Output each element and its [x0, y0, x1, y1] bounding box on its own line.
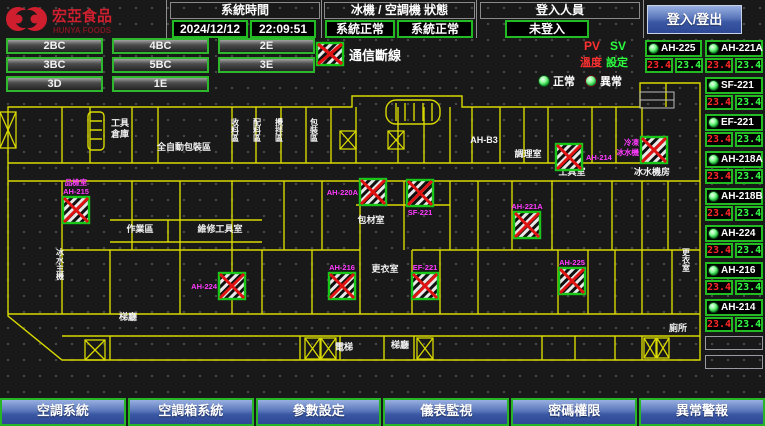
service-room-outline — [640, 92, 674, 108]
equipment-name: AH-224 — [721, 228, 755, 239]
brand-logo: 宏亞食品 HUNYA FOODS — [4, 2, 162, 41]
equipment-name: AH-216 — [721, 265, 755, 276]
equipment-values-ah-221a: 23.423.4 — [705, 58, 763, 73]
stair-x-icon — [85, 340, 105, 360]
equipment-name: EF-221 — [721, 117, 754, 128]
equipment-values-ef-221: 23.423.4 — [705, 132, 763, 147]
floor-button-3e[interactable]: 3E — [218, 57, 315, 73]
device-label: AH-221A — [511, 202, 543, 211]
device-label: AH-225 — [559, 258, 585, 267]
equipment-name: AH-218B — [721, 191, 763, 202]
room-label: 更衣室 — [681, 247, 691, 273]
room-label: 更衣室 — [371, 263, 398, 274]
status-lamp-icon — [708, 43, 719, 54]
sv-value: 23.4 — [735, 280, 763, 295]
equipment-empty-slot — [705, 336, 763, 350]
login-logout-button[interactable]: 登入/登出 — [647, 5, 742, 34]
brand-sub: HUNYA FOODS — [53, 26, 112, 35]
equipment-name: AH-218A — [721, 154, 763, 165]
device-ah-216[interactable]: AH-216 — [329, 263, 355, 299]
pv-value: 23.4 — [705, 95, 733, 110]
room-label: 配料區 — [253, 118, 262, 142]
device-label: AH-216 — [329, 263, 355, 272]
pv-value: 23.4 — [705, 317, 733, 332]
floor-button-3bc[interactable]: 3BC — [6, 57, 103, 73]
stair-x-icon — [321, 338, 336, 359]
equipment-ah-214[interactable]: AH-214 — [705, 299, 763, 316]
stair-x-icon — [417, 338, 433, 359]
device-ah-224[interactable]: AH-224 — [191, 273, 245, 299]
sv-header-label: SV — [610, 39, 626, 53]
device-ah-215[interactable]: 品檢室AH-215 — [63, 177, 89, 223]
menu-button-ahu-system[interactable]: 空調箱系統 — [128, 398, 254, 426]
chiller-status: 系統正常 — [325, 20, 395, 38]
device-label: AH-214 — [586, 153, 613, 162]
comm-offline-icon — [315, 41, 345, 67]
pv-value: 23.4 — [705, 169, 733, 184]
menu-button-parameter-setting[interactable]: 參數設定 — [256, 398, 382, 426]
menu-button-ac-system[interactable]: 空調系統 — [0, 398, 126, 426]
status-lamp-icon — [708, 265, 719, 276]
equipment-ah-225[interactable]: AH-225 — [645, 40, 702, 57]
room-label: 電梯 — [335, 341, 353, 352]
pv-value: 23.4 — [705, 243, 733, 258]
equipment-values-ah-225: 23.423.4 — [645, 58, 702, 73]
device-label: EF-221 — [413, 263, 438, 272]
floor-button-2e[interactable]: 2E — [218, 38, 315, 54]
pv-value: 23.4 — [705, 132, 733, 147]
room-label: 包材室 — [356, 214, 384, 225]
device-sf-221[interactable]: SF-221 — [407, 180, 433, 217]
pv-header-label: PV — [584, 39, 600, 53]
room-label: 維修工具室 — [197, 223, 242, 234]
room-label: 梯廳 — [391, 339, 409, 350]
equipment-ah-216[interactable]: AH-216 — [705, 262, 763, 279]
sv-value: 23.4 — [735, 95, 763, 110]
sv-value: 23.4 — [735, 132, 763, 147]
equipment-name: AH-221A — [721, 43, 763, 54]
device-ef-221[interactable]: EF-221 — [412, 263, 438, 299]
device-ah-225[interactable]: AH-225 — [559, 258, 585, 294]
equipment-sf-221[interactable]: SF-221 — [705, 77, 763, 94]
equipment-empty-slot — [705, 355, 763, 369]
menu-button-password-permission[interactable]: 密碼權限 — [511, 398, 637, 426]
equipment-ah-221a[interactable]: AH-221A — [705, 40, 763, 57]
status-lamp-icon — [708, 228, 719, 239]
device-label: SF-221 — [408, 208, 433, 217]
equipment-values-sf-221: 23.423.4 — [705, 95, 763, 110]
room-label: 倉庫 — [110, 128, 129, 139]
sv-sub-label: 設定 — [606, 54, 628, 70]
device-label: 冰水機 — [617, 147, 640, 157]
sv-value: 23.4 — [735, 317, 763, 332]
sv-value: 23.4 — [735, 58, 763, 73]
equipment-ah-224[interactable]: AH-224 — [705, 225, 763, 242]
normal-lamp-icon — [538, 75, 550, 87]
equipment-column-b: AH-221A23.423.4SF-22123.423.4EF-22123.42… — [705, 40, 763, 374]
system-time-value: 22:09:51 — [250, 20, 316, 38]
floor-button-3d[interactable]: 3D — [6, 76, 103, 92]
device-label: AH-215 — [63, 187, 89, 196]
sv-value: 23.4 — [735, 243, 763, 258]
normal-label: 正常 — [553, 73, 575, 89]
equipment-ah-218b[interactable]: AH-218B — [705, 188, 763, 205]
equipment-values-ah-224: 23.423.4 — [705, 243, 763, 258]
ahu-status: 系統正常 — [397, 20, 473, 38]
pv-sub-label: 溫度 — [580, 54, 602, 70]
room-label: 廁所 — [669, 322, 687, 333]
device-label: AH-220A — [327, 188, 359, 197]
status-lamp-icon — [708, 191, 719, 202]
sv-value: 23.4 — [675, 58, 703, 73]
floor-button-2bc[interactable]: 2BC — [6, 38, 103, 54]
comm-offline-label: 通信斷線 — [349, 45, 401, 64]
brand-logo-mark — [6, 7, 47, 31]
stair-x-icon — [340, 131, 356, 149]
room-label: 工具 — [111, 118, 129, 128]
status-lamp-icon — [648, 43, 659, 54]
stair-x-icon — [644, 338, 656, 358]
status-lamp-icon — [708, 302, 719, 313]
equipment-values-ah-216: 23.423.4 — [705, 280, 763, 295]
menu-button-abnormal-alarm[interactable]: 異常警報 — [639, 398, 765, 426]
pv-value: 23.4 — [705, 206, 733, 221]
equipment-name: SF-221 — [721, 80, 754, 91]
device-label: AH-224 — [191, 282, 218, 291]
sv-value: 23.4 — [735, 169, 763, 184]
login-user-label: 登入人員 — [480, 2, 640, 19]
abnormal-label: 異常 — [600, 73, 622, 89]
sv-value: 23.4 — [735, 206, 763, 221]
room-label: 冰水主機 — [55, 247, 65, 281]
menu-button-meter-monitor[interactable]: 儀表監視 — [383, 398, 509, 426]
stair-x-icon — [388, 131, 404, 149]
pv-value: 23.4 — [705, 58, 733, 73]
abnormal-lamp-icon — [585, 75, 597, 87]
brand-name: 宏亞食品 — [52, 7, 112, 25]
equipment-values-ah-214: 23.423.4 — [705, 317, 763, 332]
room-label: 收料區 — [231, 117, 240, 142]
bottom-menu: 空調系統空調箱系統參數設定儀表監視密碼權限異常警報 — [0, 398, 765, 426]
floor-button-5bc[interactable]: 5BC — [112, 57, 209, 73]
equipment-values-ah-218b: 23.423.4 — [705, 206, 763, 221]
device-freezer-chiller[interactable]: 冷凍冰水機 — [617, 137, 668, 163]
stair-x-icon — [305, 338, 320, 359]
equipment-ah-218a[interactable]: AH-218A — [705, 151, 763, 168]
equipment-column-a: AH-22523.423.4 — [645, 40, 702, 77]
status-lamp-icon — [708, 154, 719, 165]
hmi-screen: 工具倉庫全自動包裝區收料區配料區攪拌區包裝區AH-B3調理室工具室冰水機房包材室… — [0, 0, 765, 426]
room-label: 作業區 — [126, 223, 153, 234]
status-lamp-icon — [708, 117, 719, 128]
system-time-label: 系統時間 — [170, 2, 320, 19]
floor-nav: 2BC4BC2E3BC5BC3E3D1E — [6, 38, 315, 92]
device-ah-220a[interactable]: AH-220A — [327, 179, 386, 205]
machine-status-label: 冰機 / 空調機 狀態 — [324, 2, 475, 19]
pv-value: 23.4 — [645, 58, 673, 73]
device-label: 冷凍 — [624, 137, 639, 147]
equipment-values-ah-218a: 23.423.4 — [705, 169, 763, 184]
login-status: 未登入 — [505, 20, 589, 38]
status-lamp-icon — [708, 80, 719, 91]
equipment-name: AH-225 — [661, 43, 695, 54]
equipment-ef-221[interactable]: EF-221 — [705, 114, 763, 131]
room-label: 包裝區 — [309, 117, 319, 142]
device-label: 品檢室 — [65, 177, 88, 187]
system-date-value: 2024/12/12 — [172, 20, 248, 38]
floor-button-4bc[interactable]: 4BC — [112, 38, 209, 54]
pv-value: 23.4 — [705, 280, 733, 295]
room-label: 全自動包裝區 — [156, 141, 211, 152]
room-label: 調理室 — [514, 148, 541, 159]
room-label: 冰水機房 — [634, 166, 670, 177]
device-ah-221a[interactable]: AH-221A — [511, 202, 543, 238]
floor-button-1e[interactable]: 1E — [112, 76, 209, 92]
room-label: 攪拌區 — [275, 117, 284, 142]
room-label: AH-B3 — [470, 135, 498, 145]
equipment-name: AH-214 — [721, 302, 755, 313]
room-label: 梯廳 — [119, 311, 137, 322]
stair-x-icon — [657, 338, 669, 358]
